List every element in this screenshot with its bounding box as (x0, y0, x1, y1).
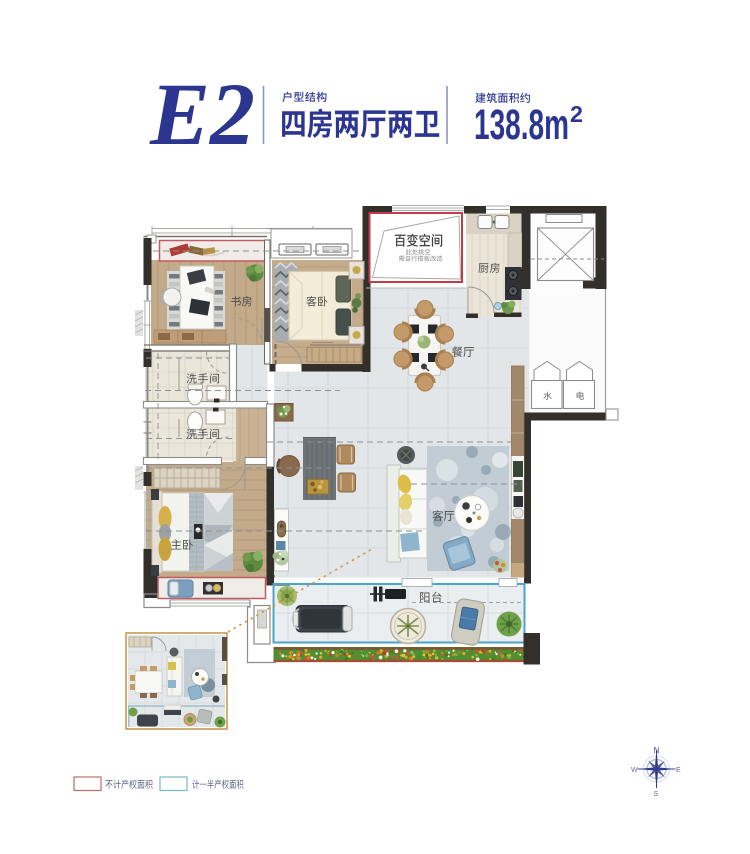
svg-text:W: W (631, 767, 638, 774)
svg-text:138.8m: 138.8m (474, 101, 569, 149)
svg-text:S: S (654, 791, 659, 798)
svg-text:N: N (654, 746, 660, 755)
svg-text:2: 2 (570, 101, 583, 127)
svg-text:E: E (676, 767, 681, 774)
svg-text:E2: E2 (149, 66, 255, 164)
